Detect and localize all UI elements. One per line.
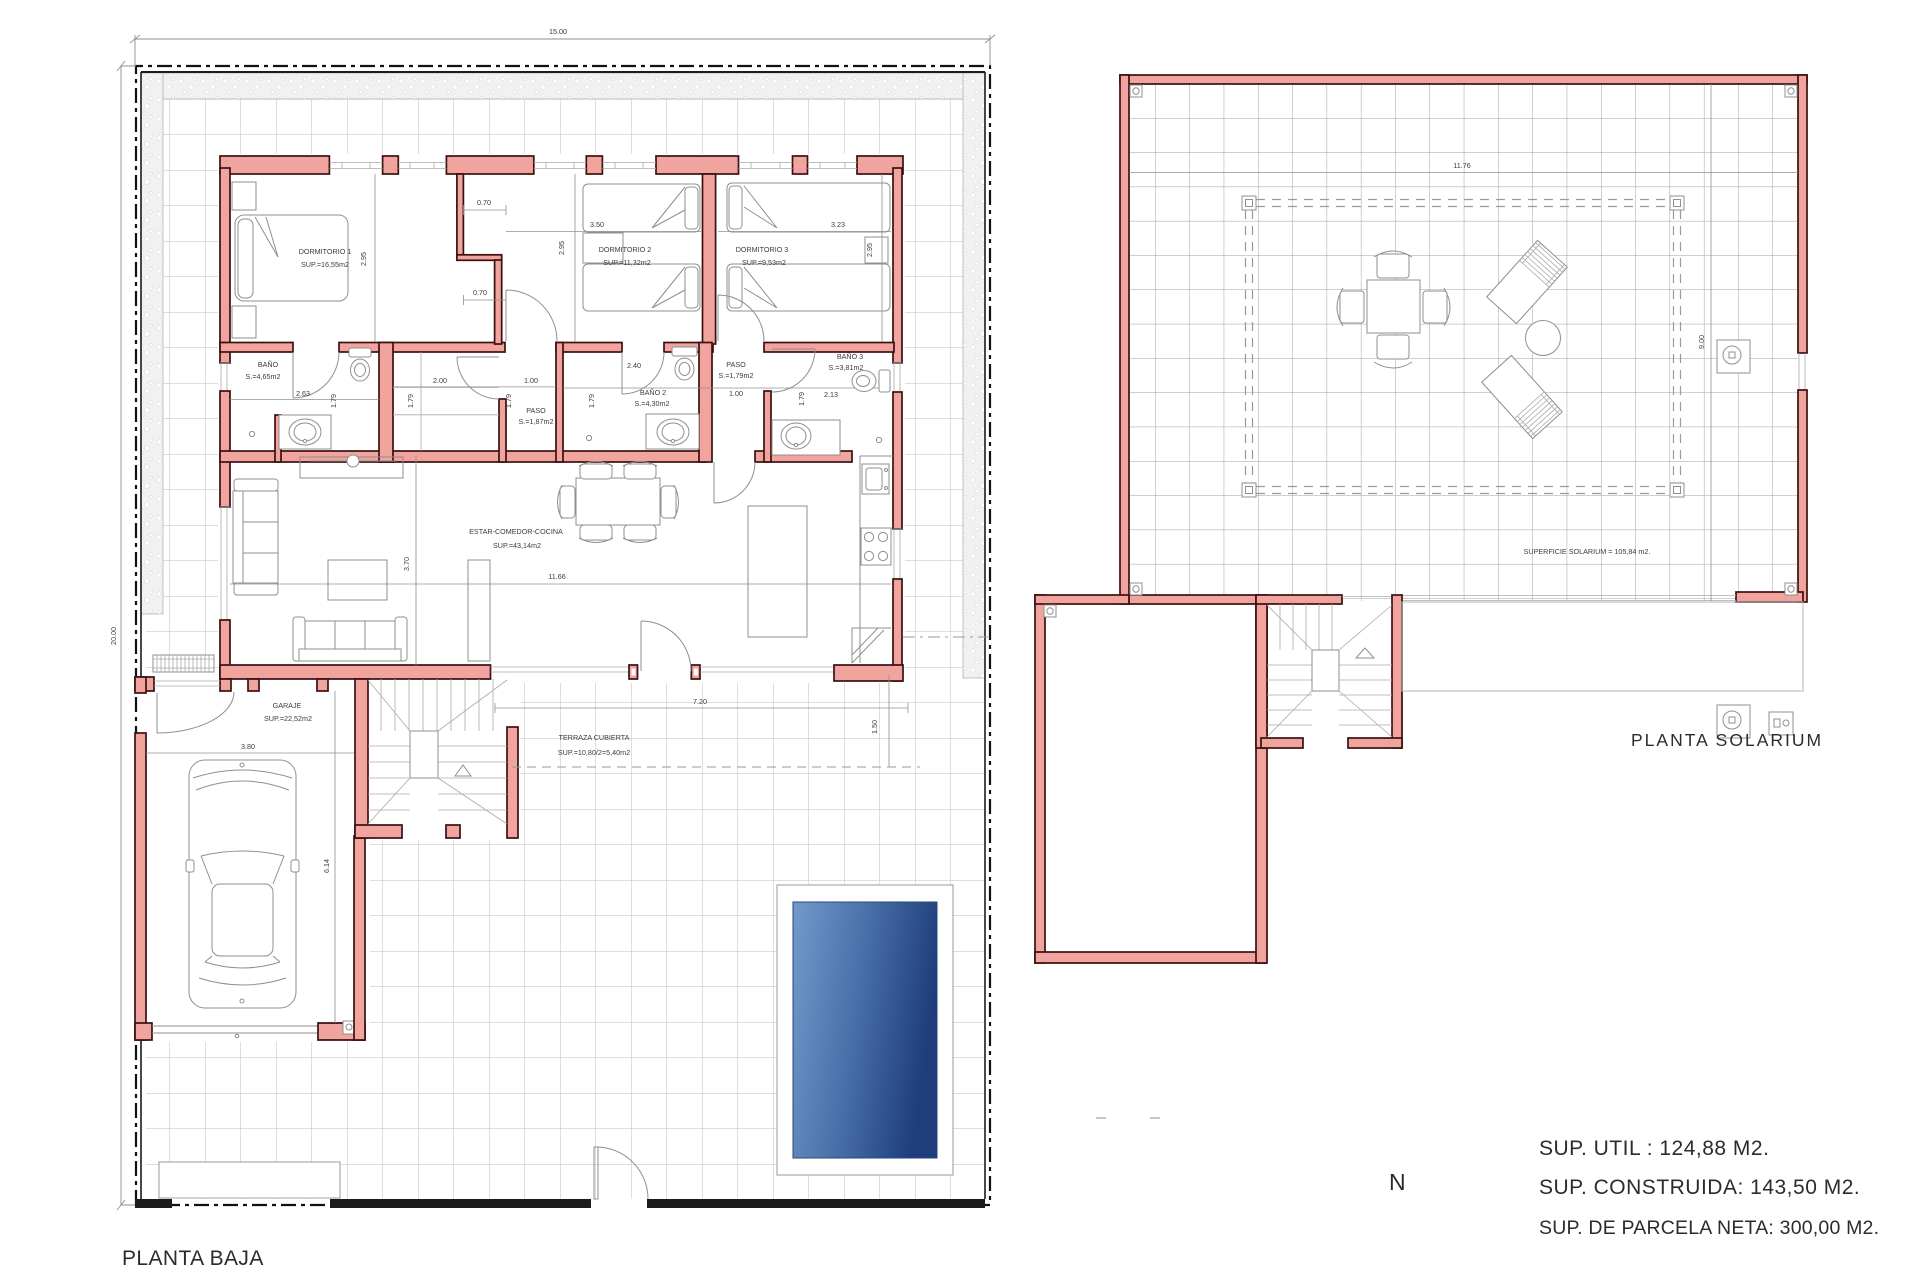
svg-text:2.95: 2.95 [359, 252, 368, 266]
svg-text:PLANTA BAJA: PLANTA BAJA [122, 1247, 264, 1270]
svg-text:SUP. UTIL : 124,88 M2.: SUP. UTIL : 124,88 M2. [1539, 1137, 1769, 1160]
svg-text:20.00: 20.00 [109, 627, 118, 645]
svg-text:9.00: 9.00 [1697, 335, 1706, 349]
svg-text:SUPERFICIE SOLARIUM = 105,84 m: SUPERFICIE SOLARIUM = 105,84 m2. [1524, 547, 1651, 556]
svg-text:7.20: 7.20 [693, 697, 707, 706]
svg-text:S.=1,79m2: S.=1,79m2 [719, 371, 754, 380]
svg-text:3.50: 3.50 [590, 220, 604, 229]
svg-text:1.79: 1.79 [504, 394, 513, 408]
svg-text:2.95: 2.95 [557, 241, 566, 255]
svg-text:BAÑO 2: BAÑO 2 [640, 388, 666, 397]
svg-text:PASO: PASO [526, 406, 546, 415]
svg-text:DORMITORIO 2: DORMITORIO 2 [599, 245, 652, 254]
svg-text:SUP. DE PARCELA NETA: 300,00 M: SUP. DE PARCELA NETA: 300,00 M2. [1539, 1217, 1879, 1239]
svg-text:SUP. CONSTRUIDA: 143,50 M2.: SUP. CONSTRUIDA: 143,50 M2. [1539, 1176, 1860, 1199]
svg-text:6.14: 6.14 [322, 859, 331, 873]
svg-text:1.00: 1.00 [729, 389, 743, 398]
svg-text:11.76: 11.76 [1453, 161, 1470, 170]
svg-text:SUP.=11,32m2: SUP.=11,32m2 [603, 258, 650, 267]
svg-text:SUP.=10,80/2=5,40m2: SUP.=10,80/2=5,40m2 [558, 748, 630, 757]
svg-text:SUP.=22,52m2: SUP.=22,52m2 [264, 714, 312, 723]
svg-text:0.70: 0.70 [477, 198, 491, 207]
svg-text:DORMITORIO 3: DORMITORIO 3 [736, 245, 789, 254]
svg-text:3.80: 3.80 [241, 742, 255, 751]
svg-text:TERRAZA CUBIERTA: TERRAZA CUBIERTA [559, 733, 630, 742]
svg-text:BAÑO: BAÑO [258, 360, 279, 369]
svg-text:3.70: 3.70 [402, 557, 411, 571]
svg-text:1.79: 1.79 [797, 392, 806, 406]
svg-text:GARAJE: GARAJE [273, 701, 302, 710]
svg-text:PASO: PASO [726, 360, 746, 369]
svg-text:2.40: 2.40 [627, 361, 641, 370]
svg-text:1.79: 1.79 [587, 394, 596, 408]
svg-text:SUP.=9,53m2: SUP.=9,53m2 [742, 258, 786, 267]
svg-text:2.00: 2.00 [433, 376, 447, 385]
svg-text:15.00: 15.00 [549, 27, 567, 36]
svg-text:3.23: 3.23 [831, 220, 845, 229]
svg-text:SUP.=16,55m2: SUP.=16,55m2 [301, 260, 349, 269]
svg-text:DORMITORIO 1: DORMITORIO 1 [299, 247, 352, 256]
svg-text:PLANTA SOLARIUM: PLANTA SOLARIUM [1631, 730, 1823, 750]
svg-text:BAÑO 3: BAÑO 3 [837, 352, 863, 361]
svg-text:N: N [1389, 1169, 1406, 1195]
svg-text:1.79: 1.79 [329, 394, 338, 408]
svg-text:2.95: 2.95 [865, 243, 874, 257]
svg-text:2.13: 2.13 [824, 390, 838, 399]
svg-text:S.=1,87m2: S.=1,87m2 [519, 417, 554, 426]
svg-text:1.00: 1.00 [524, 376, 538, 385]
svg-text:S.=3,81m2: S.=3,81m2 [829, 363, 864, 372]
svg-text:ESTAR-COMEDOR-COCINA: ESTAR-COMEDOR-COCINA [469, 527, 563, 536]
svg-text:11.66: 11.66 [548, 572, 565, 581]
svg-text:SUP.=43,14m2: SUP.=43,14m2 [493, 541, 541, 550]
svg-text:0.70: 0.70 [473, 288, 487, 297]
svg-text:S.=4,65m2: S.=4,65m2 [246, 372, 281, 381]
svg-text:S.=4,30m2: S.=4,30m2 [635, 399, 670, 408]
svg-text:2.63: 2.63 [296, 389, 310, 398]
svg-text:1.79: 1.79 [406, 394, 415, 408]
svg-text:1.50: 1.50 [870, 720, 879, 734]
